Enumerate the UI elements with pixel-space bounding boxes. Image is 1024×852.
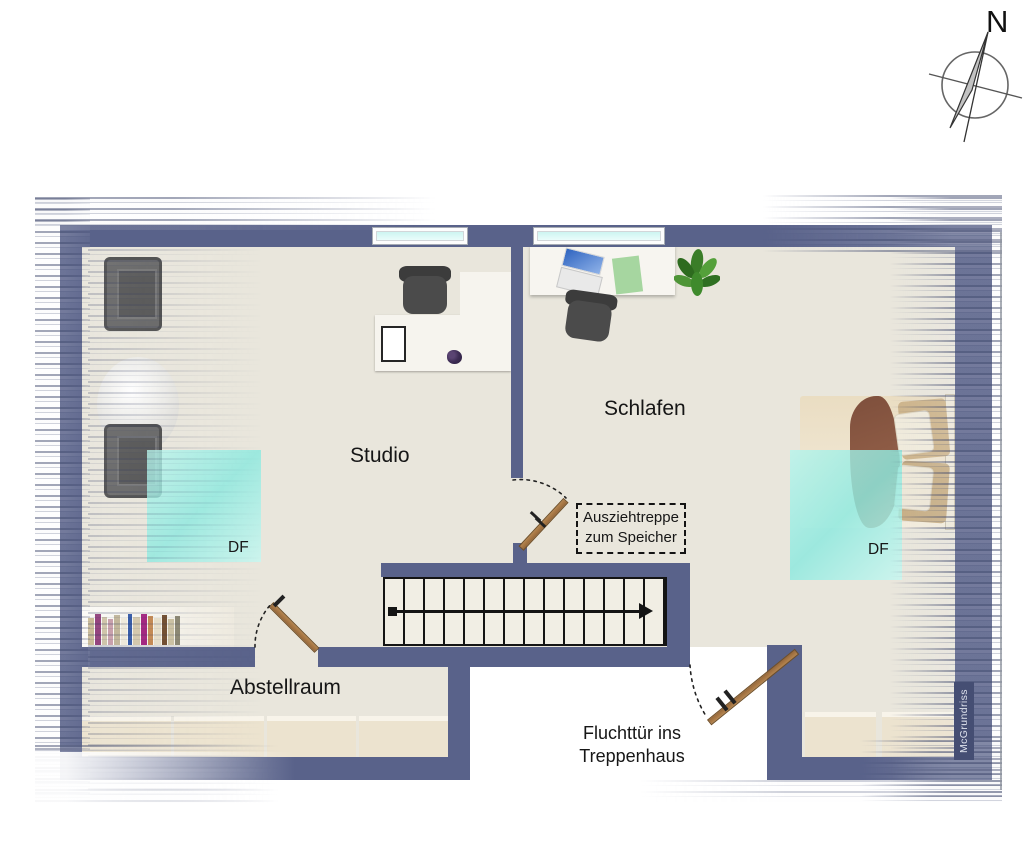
plant-icon [674,248,720,300]
window-bedroom [533,227,665,245]
tablet-on-desk [381,326,406,362]
decor-object [447,350,462,364]
skylight-label-bedroom: DF [868,541,889,559]
watermark: McGrundriss [954,682,974,760]
storage-boxes [82,716,448,757]
office-chair-bedroom [560,289,618,346]
stair-arrowhead [639,603,653,619]
desk-pad [612,255,643,294]
stair-start-dot [388,607,397,616]
office-chair-studio [399,266,451,316]
room-label-studio: Studio [350,444,410,468]
room-label-abstellraum: Abstellraum [230,676,341,700]
wall-west [60,225,82,780]
window-studio [372,227,468,245]
staircase [383,577,667,646]
attic-ladder-line1: Ausziehtreppe [578,508,684,528]
attic-ladder-line2: zum Speicher [578,528,684,548]
roof-hatch-bottom-edge [640,780,1002,802]
wall-south-abstellraum [60,757,470,780]
window-glass [376,231,464,241]
armchair-top [104,257,162,331]
wall-studio-south-a [82,647,255,667]
wall-stair-top [381,563,690,577]
window-glass [537,231,661,241]
escape-door-label: Fluchttür ins Treppenhaus [554,722,710,769]
escape-door-label-line1: Fluchttür ins [554,722,710,745]
wall-studio-south-b [318,647,690,667]
compass-icon: N [928,4,1024,154]
roof-edge-line [1000,232,1002,790]
stair-direction-line [391,610,641,613]
skylight-label-studio: DF [228,539,249,557]
bedroom-dressers [805,712,953,757]
books [88,612,228,645]
wall-north [60,225,992,247]
studio-desk-vertical [460,272,511,371]
skylight-bedroom [790,450,902,580]
wall-stair-right [667,563,690,667]
wall-south-bedroom [767,757,992,780]
wall-studio-schlafen-divider [511,247,523,478]
attic-ladder-annotation: Ausziehtreppe zum Speicher [576,503,686,554]
room-label-schlafen: Schlafen [604,397,686,421]
compass-north-label: N [986,4,1008,39]
escape-door-label-line2: Treppenhaus [554,745,710,768]
floor-door-threshold [255,647,318,667]
